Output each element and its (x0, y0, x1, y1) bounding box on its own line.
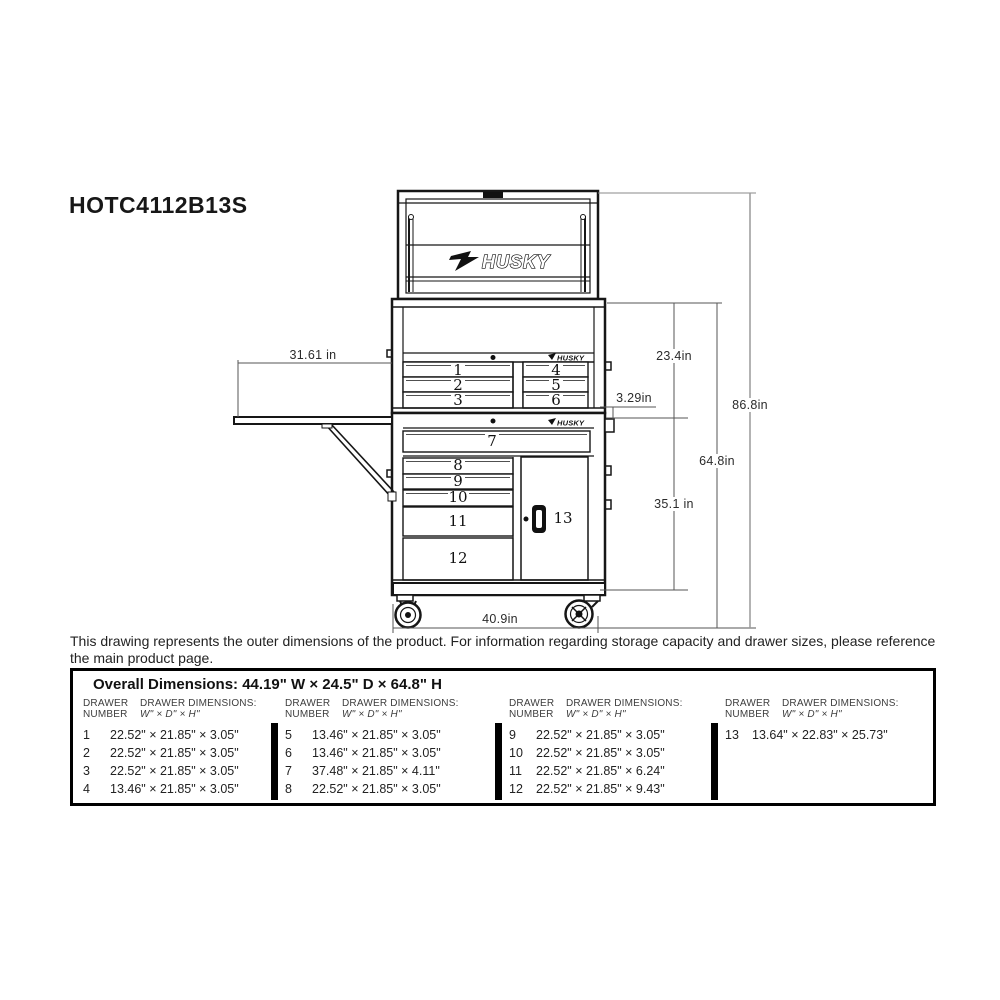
table-divider (495, 723, 502, 800)
table-row: 122.52" × 21.85" × 3.05" (83, 726, 239, 744)
drawer-12: 12 (403, 538, 513, 580)
keyhole-icon (491, 355, 496, 360)
caster-left (396, 595, 421, 628)
table-row: 922.52" × 21.85" × 3.05" (509, 726, 665, 744)
svg-text:64.8in: 64.8in (699, 454, 735, 468)
svg-text:13: 13 (553, 509, 572, 527)
svg-text:40.9in: 40.9in (482, 612, 518, 626)
tool-chest-line-drawing: HUSKY HUSKY 1 (0, 0, 1000, 1000)
side-table (234, 417, 396, 501)
svg-text:12: 12 (448, 549, 467, 567)
dimension-overall-height: 86.8in (723, 193, 777, 628)
table-row: 737.48" × 21.85" × 4.11" (285, 762, 441, 780)
svg-text:10: 10 (448, 488, 467, 506)
table-row: 1022.52" × 21.85" × 3.05" (509, 744, 665, 762)
drawer-dimensions-table: Overall Dimensions: 44.19" W × 24.5" D ×… (70, 668, 936, 806)
dimension-lower-section: 35.1 in (647, 418, 701, 590)
svg-text:HUSKY: HUSKY (557, 354, 585, 363)
table-row: 413.46" × 21.85" × 3.05" (83, 780, 239, 798)
table-group-1: DRAWERDRAWER DIMENSIONS: NUMBERW" × D" ×… (83, 698, 288, 720)
caster-right (566, 595, 601, 628)
top-chest: HUSKY 1 2 3 (392, 299, 605, 413)
rolling-cabinet: HUSKY 7 8 9 (392, 413, 605, 595)
svg-text:23.4in: 23.4in (656, 349, 692, 363)
dimension-side-table-width: 31.61 in (238, 348, 392, 417)
svg-text:86.8in: 86.8in (732, 398, 768, 412)
drawer-11: 11 (403, 507, 513, 536)
overall-dimensions: Overall Dimensions: 44.19" W × 24.5" D ×… (93, 676, 442, 693)
keyhole-icon (524, 517, 529, 522)
note-line-2: the main product page. (70, 650, 970, 667)
table-group-2: DRAWERDRAWER DIMENSIONS: NUMBERW" × D" ×… (285, 698, 490, 720)
door-13: 13 (521, 457, 588, 580)
svg-text:3: 3 (453, 391, 463, 409)
table-row: 322.52" × 21.85" × 3.05" (83, 762, 239, 780)
drawer-7: 7 (403, 431, 590, 452)
dimension-handle-depth: 3.29in (600, 391, 661, 420)
svg-text:3.29in: 3.29in (616, 391, 652, 405)
svg-text:11: 11 (448, 512, 467, 530)
svg-text:HUSKY: HUSKY (557, 419, 585, 428)
svg-text:6: 6 (551, 391, 561, 409)
table-divider (271, 723, 278, 800)
keyhole-icon (491, 419, 496, 424)
svg-text:35.1 in: 35.1 in (654, 497, 694, 511)
drawer-10: 10 (403, 488, 513, 506)
outer-dimensions-note: This drawing represents the outer dimens… (70, 633, 970, 666)
hutch: HUSKY (398, 191, 598, 299)
husky-logo-text: HUSKY (482, 252, 551, 272)
drawer-6: 6 (523, 391, 588, 409)
table-row: 1313.64" × 22.83" × 25.73" (725, 726, 888, 744)
drawer-3: 3 (403, 391, 513, 409)
svg-text:31.61 in: 31.61 in (290, 348, 337, 362)
table-row: 1222.52" × 21.85" × 9.43" (509, 780, 665, 798)
table-row: 222.52" × 21.85" × 3.05" (83, 744, 239, 762)
table-row: 822.52" × 21.85" × 3.05" (285, 780, 441, 798)
table-row: 1122.52" × 21.85" × 6.24" (509, 762, 665, 780)
svg-text:7: 7 (487, 432, 497, 450)
table-row: 513.46" × 21.85" × 3.05" (285, 726, 441, 744)
table-group-4: DRAWERDRAWER DIMENSIONS: NUMBERW" × D" ×… (725, 698, 930, 720)
note-line-1: This drawing represents the outer dimens… (70, 633, 970, 650)
product-dimension-diagram: HOTC4112B13S HUSKY (0, 0, 1000, 1000)
table-group-3: DRAWERDRAWER DIMENSIONS: NUMBERW" × D" ×… (509, 698, 714, 720)
table-divider (711, 723, 718, 800)
lid-latch (483, 192, 503, 198)
table-row: 613.46" × 21.85" × 3.05" (285, 744, 441, 762)
